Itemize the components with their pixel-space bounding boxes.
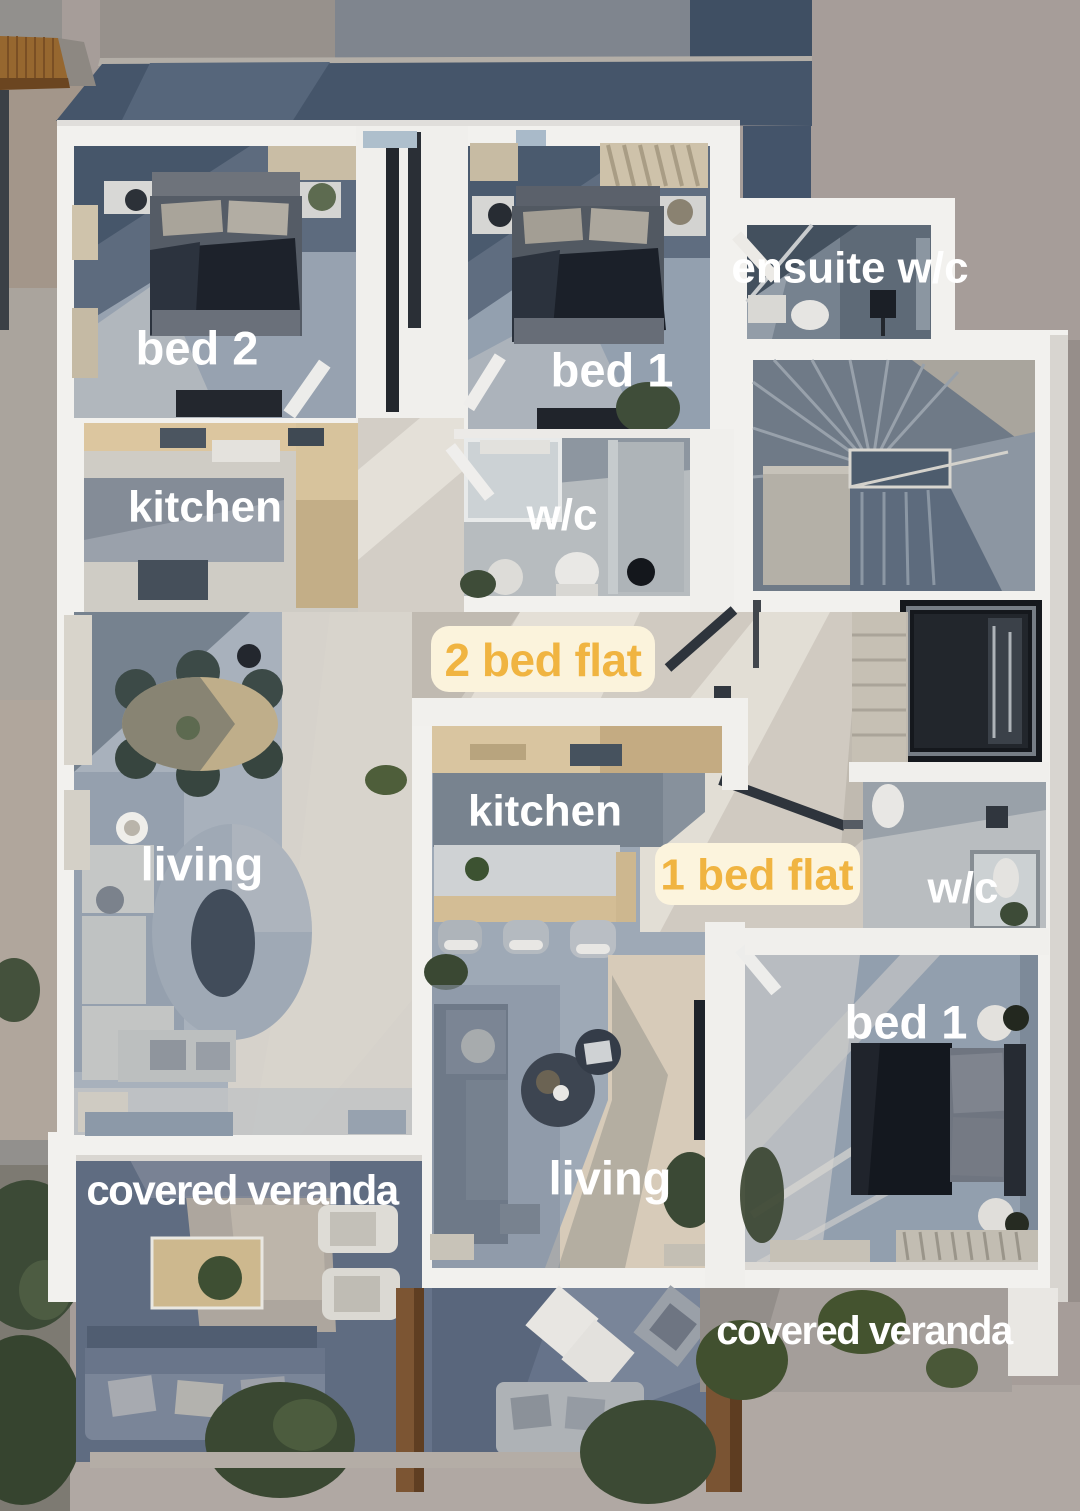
- svg-text:bed 2: bed 2: [136, 322, 259, 375]
- svg-text:bed 1: bed 1: [551, 344, 674, 397]
- svg-text:w/c: w/c: [526, 491, 598, 540]
- svg-text:kitchen: kitchen: [468, 787, 622, 836]
- svg-text:1 bed flat: 1 bed flat: [660, 851, 853, 900]
- svg-text:kitchen: kitchen: [128, 483, 282, 532]
- svg-text:covered veranda: covered veranda: [86, 1167, 399, 1214]
- svg-text:w/c: w/c: [927, 864, 999, 913]
- svg-text:living: living: [549, 1152, 672, 1205]
- svg-text:bed 1: bed 1: [845, 996, 968, 1049]
- svg-text:living: living: [141, 838, 264, 891]
- svg-text:2 bed flat: 2 bed flat: [445, 634, 642, 686]
- svg-text:covered veranda: covered veranda: [716, 1309, 1014, 1353]
- svg-text:ensuite w/c: ensuite w/c: [731, 244, 968, 293]
